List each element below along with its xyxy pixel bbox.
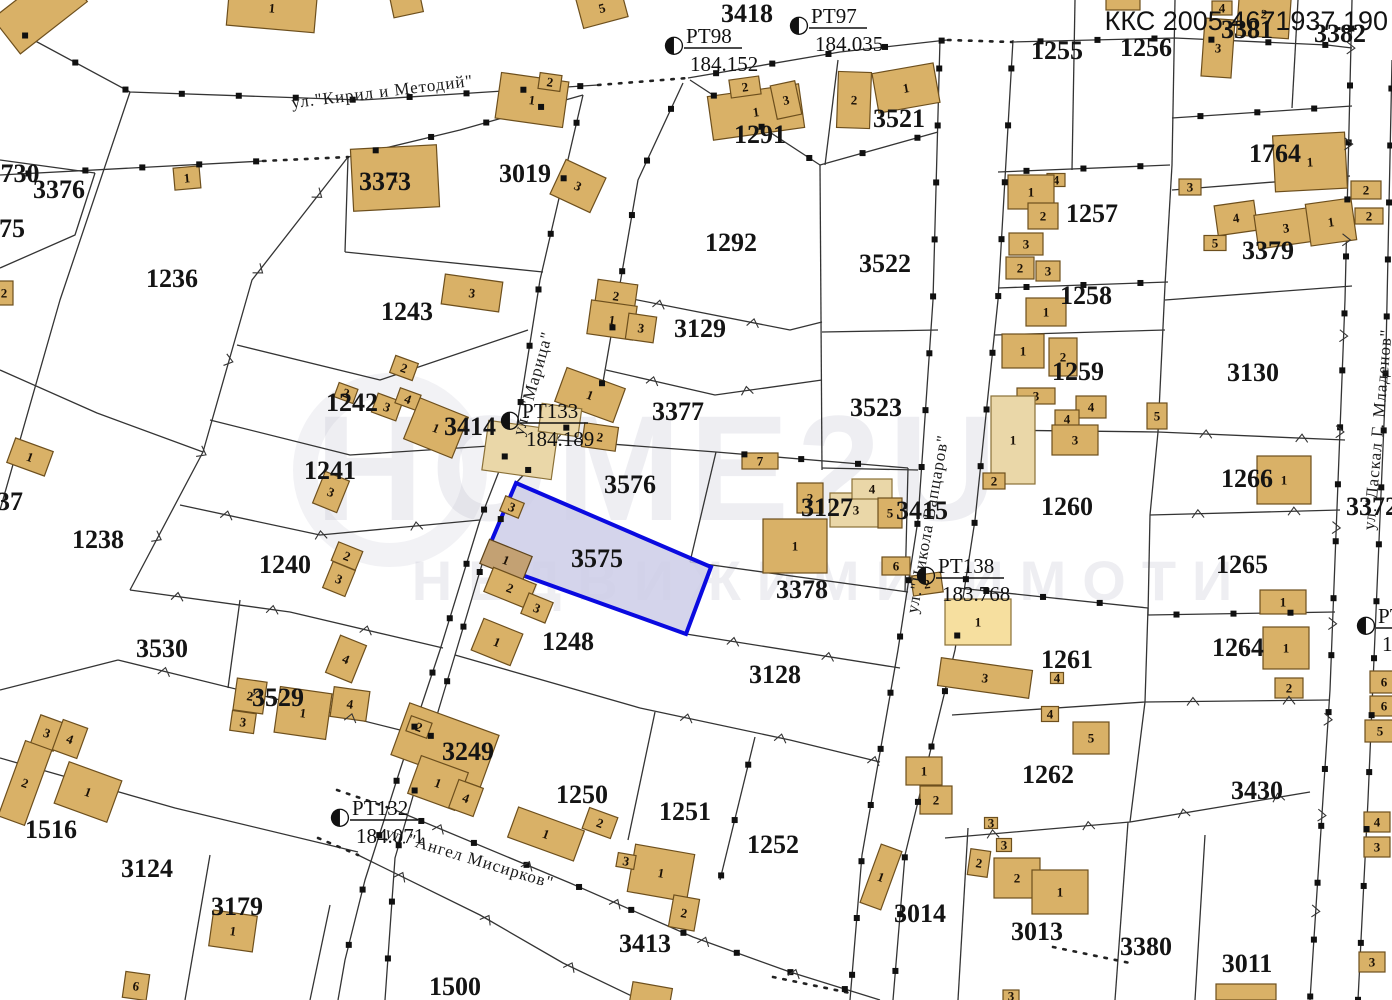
survey-tick <box>897 634 903 640</box>
building: 2 <box>1028 203 1058 229</box>
parcel-label-3576[interactable]: 3576 <box>604 470 656 499</box>
survey-tick <box>1097 600 1103 606</box>
survey-tick <box>1197 113 1203 119</box>
survey-tick <box>428 134 434 140</box>
building-number: 3 <box>1187 180 1194 195</box>
survey-tick <box>360 887 366 893</box>
survey-tick <box>745 762 751 768</box>
survey-tick <box>1385 256 1391 262</box>
survey-tick <box>447 615 453 621</box>
building-number: 5 <box>1377 724 1384 739</box>
building: 1 <box>1260 590 1306 614</box>
survey-tick <box>868 802 874 808</box>
survey-tick <box>930 293 936 299</box>
survey-tick <box>1307 993 1313 999</box>
map-reference: ККС 2005.4671937.190 <box>1105 6 1388 36</box>
building: 2 <box>1351 181 1381 199</box>
parcel-label-3130[interactable]: 3130 <box>1227 358 1279 387</box>
parcel-label-3575[interactable]: 3575 <box>571 544 623 573</box>
survey-tick <box>919 464 925 470</box>
building-number: 1 <box>1306 154 1313 169</box>
parcel-label-37[interactable]: 37 <box>0 487 23 516</box>
building-number: 3 <box>1072 433 1079 448</box>
survey-tick <box>1322 766 1328 772</box>
building: 3 <box>1036 261 1060 281</box>
parcel-label-75[interactable]: 75 <box>0 214 25 243</box>
building: 2 <box>967 849 990 878</box>
survey-tick <box>984 406 990 412</box>
parcel-label-1251[interactable]: 1251 <box>659 797 711 826</box>
survey-tick <box>939 38 945 44</box>
survey-tick <box>1387 142 1392 148</box>
survey-tick <box>483 120 489 126</box>
parcel-label-3530[interactable]: 3530 <box>136 634 188 663</box>
control-point-elevation: 184.035 <box>815 32 883 56</box>
building-number: 2 <box>1366 209 1373 224</box>
building-number: 3 <box>988 816 995 831</box>
building: 2 <box>1006 257 1034 279</box>
parcel-label-3129[interactable]: 3129 <box>674 314 726 343</box>
building: 5 <box>1147 403 1167 429</box>
survey-tick <box>1388 85 1392 91</box>
survey-tick <box>394 778 400 784</box>
survey-tick <box>680 930 686 936</box>
building: 3 <box>1364 837 1390 857</box>
building-number: 4 <box>1064 412 1071 427</box>
control-point-icon: ◐ <box>916 560 937 588</box>
survey-tick <box>1371 655 1377 661</box>
survey-tick <box>1002 179 1008 185</box>
survey-tick <box>842 986 848 992</box>
building-number: 1 <box>921 764 928 779</box>
parcel-label-1500[interactable]: 1500 <box>429 972 481 1000</box>
survey-tick <box>878 746 884 752</box>
parcel-label-3522[interactable]: 3522 <box>859 249 911 278</box>
building-number: 2 <box>1286 681 1293 696</box>
survey-tick <box>1230 611 1236 617</box>
building-number: 1 <box>1283 641 1290 656</box>
building: 1 <box>1032 870 1088 914</box>
building-number: 2 <box>1017 261 1024 276</box>
parcel-label-1252[interactable]: 1252 <box>747 830 799 859</box>
survey-tick <box>1344 196 1350 202</box>
building-number: 2 <box>1014 871 1021 886</box>
parcel-label-3014[interactable]: 3014 <box>894 899 946 928</box>
building-number: 3 <box>1023 237 1030 252</box>
building-footprint <box>1216 984 1276 1000</box>
survey-tick <box>928 744 934 750</box>
cadastral-map-viewport: HOME2U НЕДВИЖИМИ ИМОТИ 15112312321342134… <box>0 0 1392 1000</box>
building-number: 1 <box>1043 305 1050 320</box>
parcel-label-3379[interactable]: 3379 <box>1242 236 1294 265</box>
survey-tick <box>1341 310 1347 316</box>
survey-tick <box>933 179 939 185</box>
parcel-label-3128[interactable]: 3128 <box>749 660 801 689</box>
survey-tick <box>1343 253 1349 259</box>
survey-tick <box>1347 82 1353 88</box>
parcel-label-1291[interactable]: 1291 <box>734 120 786 149</box>
survey-tick <box>444 678 450 684</box>
building: 3 <box>1179 179 1201 195</box>
survey-tick <box>995 293 1001 299</box>
parcel-label-1764[interactable]: 1764 <box>1249 139 1301 168</box>
parcel-label-3372[interactable]: 3372 <box>1346 492 1392 521</box>
building-number: 1 <box>1057 885 1064 900</box>
parcel-label-3249[interactable]: 3249 <box>442 737 494 766</box>
survey-tick <box>1361 883 1367 889</box>
survey-tick <box>1094 37 1100 43</box>
survey-tick <box>1328 652 1334 658</box>
survey-tick <box>902 854 908 860</box>
building-number: 4 <box>1047 707 1054 722</box>
survey-tick <box>179 91 185 97</box>
survey-tick <box>82 167 88 173</box>
control-point-id: РТ133 <box>522 399 578 423</box>
building: 2 <box>538 73 562 92</box>
survey-tick <box>644 158 650 164</box>
parcel-label-1259[interactable]: 1259 <box>1052 357 1104 386</box>
survey-tick <box>860 150 866 156</box>
parcel-label-1265[interactable]: 1265 <box>1216 550 1268 579</box>
building-number: 3 <box>1369 955 1376 970</box>
parcel-label-1262[interactable]: 1262 <box>1022 760 1074 789</box>
building-number: 5 <box>887 506 894 521</box>
parcel-label-1255[interactable]: 1255 <box>1031 36 1083 65</box>
parcel-label-1257[interactable]: 1257 <box>1066 199 1118 228</box>
building-number: 5 <box>1154 409 1161 424</box>
building: 1 <box>906 757 942 785</box>
survey-tick <box>385 955 391 961</box>
survey-tick <box>1339 367 1345 373</box>
survey-tick <box>1318 823 1324 829</box>
survey-tick <box>1376 541 1382 547</box>
survey-tick <box>1311 106 1317 112</box>
building: 2 <box>983 473 1005 489</box>
building-number: 1 <box>1281 473 1288 488</box>
survey-tick <box>954 633 960 639</box>
parcel-label-1261[interactable]: 1261 <box>1041 645 1093 674</box>
parcel-label-1248[interactable]: 1248 <box>542 627 594 656</box>
parcel-label-1256[interactable]: 1256 <box>1120 33 1172 62</box>
survey-tick <box>460 624 466 630</box>
building-number: 2 <box>991 474 998 489</box>
survey-tick <box>346 942 352 948</box>
building-number: 3 <box>1374 840 1381 855</box>
building <box>1216 984 1276 1000</box>
parcel-label-3521[interactable]: 3521 <box>873 104 925 133</box>
building: 6 <box>122 971 149 1000</box>
building-number: 6 <box>1381 699 1388 714</box>
survey-tick <box>914 135 920 141</box>
building: 2 <box>729 76 761 98</box>
survey-tick <box>732 817 738 823</box>
survey-tick <box>915 799 921 805</box>
control-point-elevation: 184.071 <box>356 824 424 848</box>
parcel-label-1266[interactable]: 1266 <box>1221 464 1273 493</box>
parcel-label-1258[interactable]: 1258 <box>1060 281 1112 310</box>
parcel-label-730[interactable]: 730 <box>1 159 40 188</box>
survey-tick <box>1369 712 1375 718</box>
survey-tick <box>1023 284 1029 290</box>
survey-tick <box>574 120 580 126</box>
parcel-label-1250[interactable]: 1250 <box>556 780 608 809</box>
survey-tick <box>599 380 605 386</box>
parcel-label-3127[interactable]: 3127 <box>801 493 853 522</box>
survey-tick <box>561 175 567 181</box>
building: 4 <box>1214 200 1258 235</box>
building-number: 1 <box>792 539 799 554</box>
survey-tick <box>498 516 504 522</box>
parcel-label-3415[interactable]: 3415 <box>896 496 948 525</box>
survey-tick <box>922 407 928 413</box>
parcel-label-1242[interactable]: 1242 <box>326 388 378 417</box>
building: 3 <box>997 838 1012 853</box>
survey-tick <box>253 158 259 164</box>
parcel-label-1240[interactable]: 1240 <box>259 550 311 579</box>
building-number: 6 <box>1381 675 1388 690</box>
survey-tick <box>741 451 747 457</box>
survey-tick <box>1333 538 1339 544</box>
building-number: 3 <box>1001 838 1008 853</box>
survey-tick <box>576 884 582 890</box>
parcel-label-3380[interactable]: 3380 <box>1120 932 1172 961</box>
survey-tick <box>429 670 435 676</box>
parcel-label-1238[interactable]: 1238 <box>72 525 124 554</box>
building: 3 <box>1003 989 1019 1000</box>
survey-tick <box>1315 880 1321 886</box>
parcel-label-3529[interactable]: 3529 <box>252 683 304 712</box>
building-number: 3 <box>1045 264 1052 279</box>
parcel-label-3523[interactable]: 3523 <box>850 393 902 422</box>
parcel-label-1236[interactable]: 1236 <box>146 264 198 293</box>
building-number: 4 <box>869 482 876 497</box>
parcel-label-1264[interactable]: 1264 <box>1212 633 1264 662</box>
survey-tick <box>525 467 531 473</box>
building-number: 1 <box>1028 185 1035 200</box>
building-number: 4 <box>1088 400 1095 415</box>
building: 4 <box>1042 707 1059 722</box>
survey-tick <box>999 236 1005 242</box>
survey-tick <box>373 147 379 153</box>
survey-tick <box>718 872 724 878</box>
survey-tick <box>536 286 542 292</box>
building-number: 2 <box>1363 183 1370 198</box>
survey-tick <box>769 61 775 67</box>
building: 5 <box>1073 722 1109 754</box>
parcel-label-3430[interactable]: 3430 <box>1231 776 1283 805</box>
parcel-label-3377[interactable]: 3377 <box>652 397 704 426</box>
survey-tick <box>936 65 942 71</box>
survey-tick <box>629 212 635 218</box>
building-number: 1 <box>975 615 982 630</box>
building-number: 2 <box>1 286 8 301</box>
parcel-label-3414[interactable]: 3414 <box>444 412 496 441</box>
survey-tick <box>798 456 804 462</box>
building-number: 1 <box>183 170 191 186</box>
survey-tick <box>1311 937 1317 943</box>
survey-tick <box>1254 109 1260 115</box>
survey-tick <box>1023 168 1029 174</box>
survey-tick <box>935 122 941 128</box>
building-number: 3 <box>853 503 860 518</box>
building: 5 <box>1204 236 1226 251</box>
survey-tick <box>502 453 508 459</box>
building-number: 4 <box>1374 815 1381 830</box>
building-number: 1 <box>1010 433 1017 448</box>
survey-tick <box>236 93 242 99</box>
building-number: 2 <box>1040 209 1047 224</box>
building: 1 <box>627 844 694 902</box>
survey-tick <box>1331 595 1337 601</box>
survey-tick <box>471 840 477 846</box>
survey-tick <box>139 164 145 170</box>
survey-tick <box>609 324 615 330</box>
survey-tick <box>538 104 544 110</box>
building-number: 1 <box>1280 595 1287 610</box>
parcel-label-3124[interactable]: 3124 <box>121 854 173 883</box>
survey-tick <box>628 907 634 913</box>
survey-tick <box>1008 65 1014 71</box>
survey-tick <box>711 93 717 99</box>
survey-tick <box>577 83 583 89</box>
parcel-label-3013[interactable]: 3013 <box>1011 917 1063 946</box>
building: 6 <box>882 557 910 575</box>
building: 2 <box>0 281 13 305</box>
survey-tick <box>464 90 470 96</box>
parcel-label-1292[interactable]: 1292 <box>705 228 757 257</box>
parcel-label-3179[interactable]: 3179 <box>211 892 263 921</box>
parcel-label-1516[interactable]: 1516 <box>25 815 77 844</box>
survey-tick <box>734 950 740 956</box>
survey-tick <box>72 60 78 66</box>
building: 2 <box>837 71 872 128</box>
control-point-elevation: 183.768 <box>942 582 1010 606</box>
parcel-label-3378[interactable]: 3378 <box>776 575 828 604</box>
building: 6 <box>1370 671 1392 693</box>
survey-tick <box>527 343 533 349</box>
survey-tick <box>668 106 674 112</box>
building: 3 <box>985 816 998 831</box>
survey-tick <box>978 463 984 469</box>
survey-tick <box>1366 769 1372 775</box>
survey-tick <box>411 724 417 730</box>
survey-tick <box>932 236 938 242</box>
survey-tick <box>481 507 487 513</box>
building-number: 6 <box>893 559 900 574</box>
building: 1 <box>763 519 827 573</box>
survey-tick <box>855 461 861 467</box>
survey-tick <box>122 87 128 93</box>
building: 5 <box>1365 720 1392 742</box>
survey-tick <box>1364 826 1370 832</box>
building: 3 <box>625 313 656 343</box>
building: 2 <box>1275 678 1303 698</box>
survey-tick <box>849 972 855 978</box>
building: 2 <box>920 786 952 814</box>
survey-tick <box>619 268 625 274</box>
survey-tick <box>1005 122 1011 128</box>
building: 3 <box>1359 952 1385 972</box>
survey-tick <box>196 161 202 167</box>
parcel-label-1243[interactable]: 1243 <box>381 297 433 326</box>
survey-tick <box>1137 163 1143 169</box>
survey-tick <box>806 155 812 161</box>
survey-tick <box>1080 166 1086 172</box>
building-number: 1 <box>268 0 276 16</box>
survey-tick <box>1386 199 1392 205</box>
survey-tick <box>972 520 978 526</box>
survey-tick <box>1173 612 1179 618</box>
building-number: 7 <box>757 454 764 469</box>
control-point-id: РТ132 <box>352 796 408 820</box>
building: 1 <box>1002 334 1044 368</box>
survey-tick <box>1326 709 1332 715</box>
parcel-label-1260[interactable]: 1260 <box>1041 492 1093 521</box>
building-number: 2 <box>933 793 940 808</box>
parcel-label-3413[interactable]: 3413 <box>619 929 671 958</box>
survey-tick <box>989 350 995 356</box>
survey-tick <box>428 733 434 739</box>
building-number: 5 <box>1088 731 1095 746</box>
survey-tick <box>1208 37 1214 43</box>
building-number: 3 <box>1008 989 1015 1000</box>
building: 1 <box>173 166 201 190</box>
parcel-label-3376[interactable]: 3376 <box>33 175 85 204</box>
building: 3 <box>616 852 636 870</box>
control-point-elevation: 184.189 <box>526 427 594 451</box>
survey-tick <box>887 690 893 696</box>
building: 4 <box>330 687 370 722</box>
survey-tick <box>412 788 418 794</box>
survey-tick <box>1384 313 1390 319</box>
building: 2 <box>668 895 699 931</box>
control-point-id: РТ138 <box>938 554 994 578</box>
control-point-icon: ◐ <box>500 405 521 433</box>
survey-tick <box>854 915 860 921</box>
survey-tick <box>926 350 932 356</box>
control-point-icon: ◐ <box>789 10 810 38</box>
survey-tick <box>1040 594 1046 600</box>
survey-tick <box>464 561 470 567</box>
parcel-label-3373[interactable]: 3373 <box>359 167 411 196</box>
survey-tick <box>1358 940 1364 946</box>
building: 3 <box>1052 425 1098 455</box>
survey-tick <box>942 688 948 694</box>
parcel-label-3418[interactable]: 3418 <box>721 0 773 28</box>
building: 1 <box>1263 627 1309 669</box>
building: 1 <box>991 396 1035 484</box>
building: 4 <box>1076 396 1106 418</box>
survey-tick <box>1287 610 1293 616</box>
control-point-id: РТ <box>1378 604 1392 628</box>
control-point-elevation: 184.152 <box>690 52 758 76</box>
building-number: 2 <box>850 92 857 107</box>
control-point-elevation: 1 <box>1382 632 1392 656</box>
parcel-label-3011[interactable]: 3011 <box>1222 949 1273 978</box>
survey-tick <box>858 858 864 864</box>
building-number: 5 <box>1212 236 1219 251</box>
building: 2 <box>1355 208 1383 224</box>
survey-tick <box>1335 481 1341 487</box>
parcel-label-1241[interactable]: 1241 <box>304 456 356 485</box>
building: 3 <box>230 710 257 733</box>
parcel-label-3019[interactable]: 3019 <box>499 159 551 188</box>
control-point-icon: ◐ <box>1356 610 1377 638</box>
control-point-icon: ◐ <box>664 30 685 58</box>
control-point-id: РТ97 <box>811 4 857 28</box>
survey-tick <box>477 569 483 575</box>
survey-tick <box>22 33 28 39</box>
